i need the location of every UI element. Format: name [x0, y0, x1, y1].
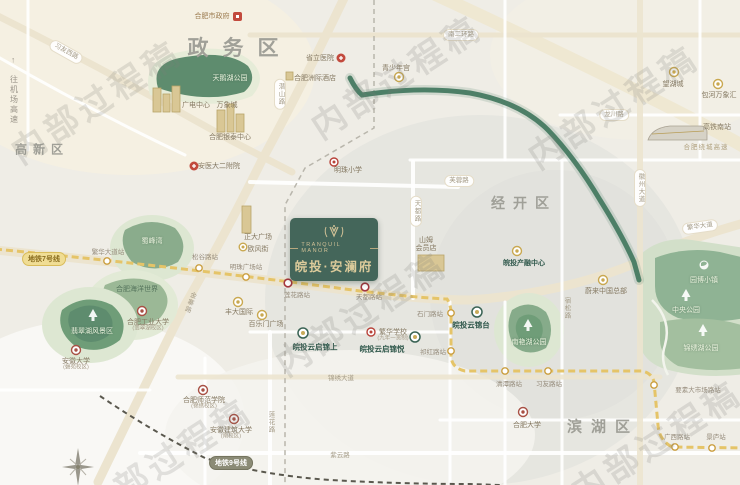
poi-hsr-south-station: 高铁南站: [703, 122, 731, 132]
government-icon-inner: [236, 15, 239, 18]
road-label-nanerhuan: 南二环路: [443, 29, 479, 41]
metro-station-dot: [709, 445, 715, 451]
station-xiyou: 习友路站: [536, 378, 562, 388]
poi-nanyan-lake-park: 南艳湖公园: [512, 337, 547, 347]
poi-provincial-hospital: 省立医院: [306, 53, 334, 63]
poi-intercontinental: 合肥洲际酒店: [294, 73, 336, 83]
road-label-lianhua: 莲花路: [265, 411, 275, 434]
metro-station-dot: [651, 382, 657, 388]
district-binhu: 滨湖区: [567, 416, 639, 437]
poi-nio-hq: 蔚来中国总部: [585, 286, 627, 296]
road-label-jinxiu: 锦绣大道: [328, 372, 354, 382]
metro-line9-label: 地铁9号线: [209, 456, 253, 470]
poi-anyi-2nd-hospital: 安医大二附院: [198, 161, 240, 171]
road-label-furong: 芙蓉路: [444, 175, 474, 187]
location-map: 内部过程稿 内部过程稿 内部过程稿 内部过程稿 内部过程稿 内部过程稿 政务区 …: [0, 0, 740, 485]
intercontinental-hotel-icon: [286, 72, 293, 80]
poi-hefei-university: 合肥大学: [513, 420, 541, 430]
poi-yintai-center: 合肥银泰中心: [209, 132, 251, 142]
poi-oufengjie: 欧风街: [248, 244, 269, 254]
road-label-qianshan: 潜山路: [274, 79, 286, 110]
road-label-longchuan: 龙川路: [599, 109, 629, 121]
metro-line7-label: 地铁7号线: [22, 252, 66, 266]
poi-ocean-world: 合肥海洋世界: [116, 284, 158, 294]
road-label-susong: 宿松路: [561, 297, 571, 320]
road-label-raocheng: 合肥绕城高速: [684, 141, 729, 151]
poi-broadcast-center: 广电中心: [182, 100, 210, 110]
poi-wantou-yunjintai: 皖投云锦台: [452, 320, 490, 331]
poi-mixc-one: 包河万象汇: [702, 90, 737, 100]
station-fanhua-dadao: 繁华大道站: [92, 246, 125, 256]
project-card: TRANQUIL MANOR 皖投·安澜府: [290, 218, 378, 281]
poi-youth-palace: 青少年宫: [382, 63, 410, 73]
road-label-ziyun: 紫云路: [330, 449, 350, 459]
poi-wantou-jinshang: 皖投云启锦上: [293, 342, 338, 353]
poi-wanghucheng: 望湖城: [663, 79, 684, 89]
project-crest-icon: [322, 224, 346, 240]
metro-station-dot: [672, 444, 678, 450]
sams-club-building: [418, 255, 444, 271]
metro-station-dot: [545, 368, 551, 374]
poi-shufengwan: 蜀峰湾: [142, 236, 163, 246]
poi-central-park: 中央公园: [672, 305, 700, 315]
metro-station-dot: [448, 310, 454, 316]
metro-station-dot: [448, 348, 454, 354]
station-yaosu-market: 要素大市场路站: [675, 384, 721, 394]
project-name-en: TRANQUIL MANOR: [290, 242, 378, 254]
metro-station-dot-lianhua: [284, 279, 292, 287]
project-name-cn: 皖投·安澜府: [295, 256, 374, 275]
poi-fanhua-school-type: (九年一贯制): [377, 336, 408, 343]
airport-arrow: ↑: [11, 56, 17, 65]
poi-wantou-chanrong: 皖投产融中心: [503, 258, 545, 268]
poi-city-government: 合肥市政府: [195, 11, 230, 21]
poi-yuanbo-town: 园博小镇: [690, 275, 718, 285]
poi-wantou-jinyue: 皖投云启锦悦: [360, 344, 405, 355]
station-lianhua: 莲花路站: [284, 289, 310, 299]
poi-jinxiu-lake-park: 锦绣湖公园: [684, 343, 719, 353]
station-guangxi: 广西路站: [664, 431, 690, 441]
metro-station-dot: [502, 368, 508, 374]
poi-anhui-university-campus: (磬苑校区): [63, 365, 89, 372]
station-qingtan: 清潭路站: [496, 378, 522, 388]
district-gaoxin: 高新区: [15, 141, 69, 158]
airport-note: 往机场高速: [9, 75, 20, 125]
poi-zhengda-plaza: 正大广场: [244, 232, 272, 242]
poi-swan-lake-park: 天鹅湖公园: [213, 73, 248, 83]
station-jinglu: 景庐站: [706, 431, 726, 441]
road-label-tiandu: 天都路: [410, 196, 422, 227]
metro-station-dot: [104, 258, 110, 264]
district-zhengwu: 政务区: [188, 32, 293, 62]
poi-bailemen-plaza: 百乐门广场: [249, 319, 284, 329]
district-jingkai: 经开区: [491, 193, 557, 213]
poi-hefei-normal-campus: (锦绣校区): [191, 404, 217, 411]
station-qihong: 祁红路站: [420, 346, 446, 356]
metro-station-dot-tiandu: [361, 283, 369, 291]
poi-feicui-lake: 翡翠湖风景区: [71, 326, 113, 336]
road-label-huizhou: 徽州大道: [634, 169, 646, 207]
station-mingzhu: 明珠广场站: [230, 261, 263, 271]
poi-anhui-jianzhu-campus: (南校区): [221, 434, 241, 441]
metro-station-dot: [243, 274, 249, 280]
poi-mixc: 万象城: [217, 100, 238, 110]
poi-sams-club-line2: 会员店: [416, 243, 437, 253]
metro-station-dot: [196, 265, 202, 271]
poi-fengda-intl: 丰大国际: [225, 307, 253, 317]
station-tiandu: 天都路站: [356, 291, 382, 301]
zhengda-plaza-building: [242, 206, 251, 233]
station-shimen: 石门路站: [417, 308, 443, 318]
poi-mingzhu-school: 明珠小学: [334, 165, 362, 175]
poi-hfut-campus: (翡翠湖校区): [132, 326, 163, 333]
station-songgu: 松谷路站: [192, 251, 218, 261]
